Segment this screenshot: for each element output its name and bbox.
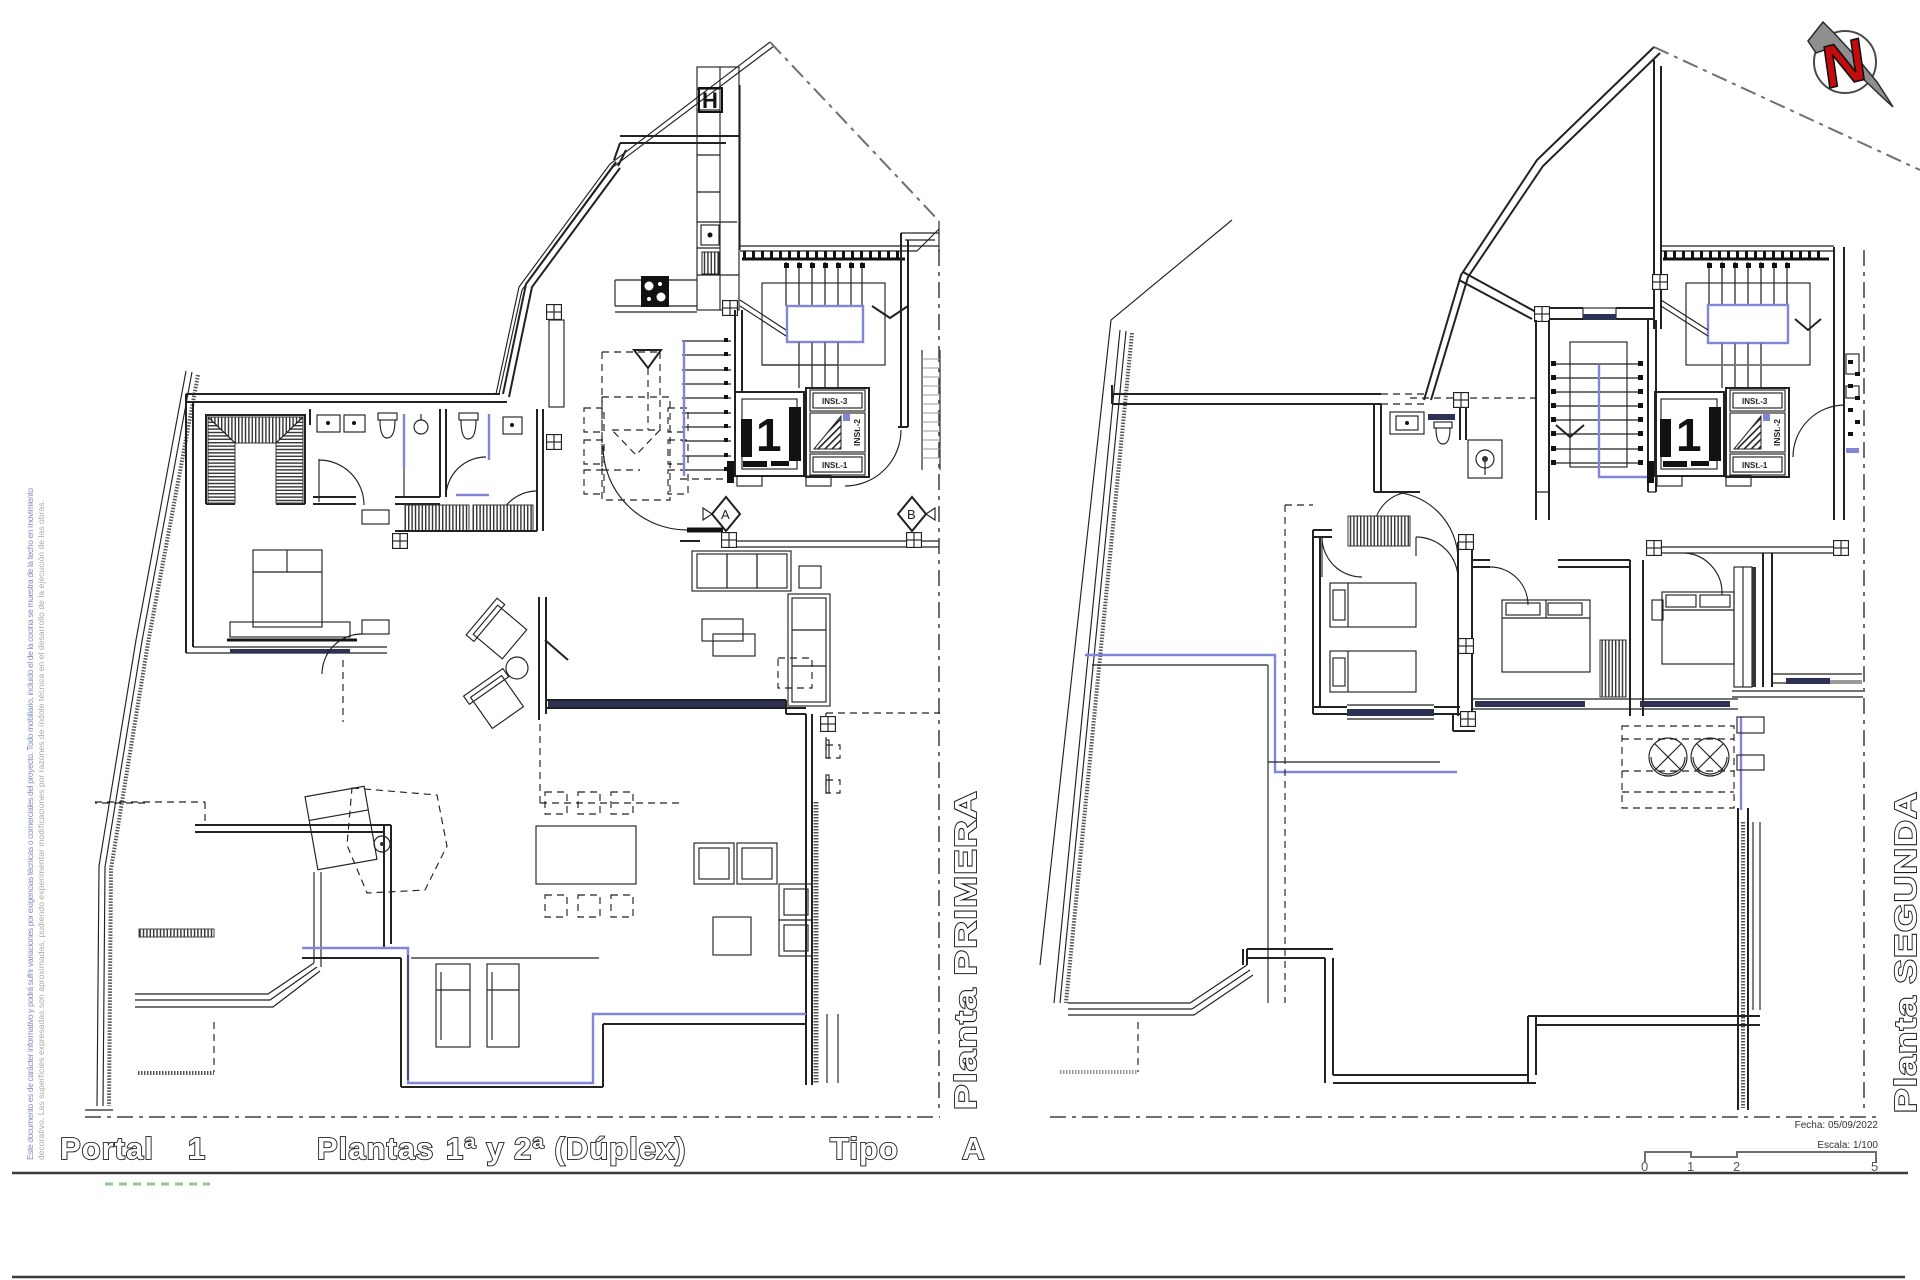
svg-text:INSt.-1: INSt.-1: [822, 461, 848, 470]
svg-text:Tipo: Tipo: [830, 1131, 899, 1166]
svg-text:decorativo. Las superficies ex: decorativo. Las superficies expresadas s…: [36, 500, 46, 1160]
svg-text:Este documento es de carácter: Este documento es de carácter informativ…: [25, 488, 35, 1160]
svg-text:1: 1: [1687, 1159, 1694, 1174]
svg-text:Escala: 1/100: Escala: 1/100: [1817, 1140, 1878, 1151]
svg-text:Fecha: 05/09/2022: Fecha: 05/09/2022: [1795, 1120, 1879, 1131]
svg-text:1: 1: [188, 1131, 206, 1166]
svg-text:1: 1: [756, 409, 782, 461]
svg-text:B: B: [907, 507, 916, 522]
svg-text:INSt.-1: INSt.-1: [1742, 461, 1768, 470]
svg-text:Planta PRIMERA: Planta PRIMERA: [948, 790, 983, 1110]
svg-text:1ª y 2ª (Dúplex): 1ª y 2ª (Dúplex): [446, 1131, 687, 1166]
svg-text:1: 1: [1676, 409, 1702, 461]
svg-text:A: A: [721, 507, 730, 522]
svg-text:H: H: [702, 88, 718, 113]
svg-text:Portal: Portal: [60, 1131, 154, 1166]
svg-text:INSt.-3: INSt.-3: [1742, 397, 1768, 406]
svg-text:INSt.-2: INSt.-2: [1772, 419, 1782, 446]
svg-text:Planta SEGUNDA: Planta SEGUNDA: [1888, 791, 1920, 1113]
svg-text:2: 2: [1733, 1159, 1740, 1174]
svg-text:5: 5: [1871, 1159, 1878, 1174]
svg-text:INSt.-2: INSt.-2: [852, 419, 862, 446]
svg-text:A: A: [962, 1131, 985, 1166]
svg-text:Plantas: Plantas: [317, 1131, 434, 1166]
svg-text:INSt.-3: INSt.-3: [822, 397, 848, 406]
svg-text:0: 0: [1641, 1159, 1648, 1174]
